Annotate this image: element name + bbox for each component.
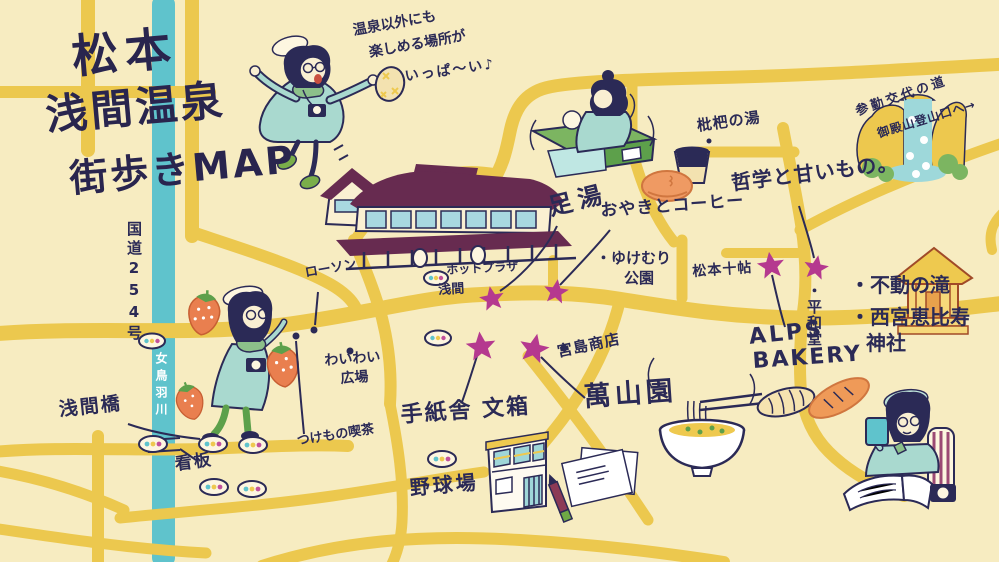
strawberry-icon: [172, 379, 207, 423]
signboard-icon: [238, 481, 266, 497]
camera-icon: [246, 358, 266, 372]
label-hot-plaza-line2: 浅間: [438, 283, 465, 297]
label-manzanen: 萬山園: [583, 378, 678, 411]
label-nishinomiya-line1: ・西宮恵比寿: [850, 307, 970, 327]
signboard-icon: [239, 437, 267, 453]
strawberry-icon: [265, 341, 300, 389]
asama-onsen-walking-map: 松本 浅間温泉 街歩きMAP 温泉以外にも 楽しめる場所が いっぱ〜い♪ 足湯 …: [0, 0, 999, 562]
signboard-icon: [199, 436, 227, 452]
signboard-icon: [139, 436, 167, 452]
label-yukemuri-park-line2: 公園: [624, 271, 654, 286]
map-title-line1: 松本: [70, 25, 180, 80]
uchiwa-fan-icon: [372, 64, 407, 104]
label-nishinomiya-line2: 神社: [866, 333, 906, 353]
reading-girl-illustration: [844, 387, 956, 510]
label-hot-plaza-line1: ホットプラザ: [446, 260, 519, 276]
signboard-icon: [428, 451, 456, 467]
label-waiwai-square-line2: 広場: [340, 370, 369, 386]
label-yukemuri-park-line1: ・ゆけむり: [596, 251, 671, 266]
label-route-254: 国道254号: [126, 221, 141, 344]
label-waiwai-square-line1: わいわい: [324, 350, 381, 368]
signboard-icon: [200, 479, 228, 495]
label-matsumoto-jujo: 松本十帖: [692, 261, 753, 279]
hot-plaza-building-illustration: [320, 164, 576, 269]
tegamisha-building-illustration: [486, 432, 548, 512]
label-metoba-river: 女鳥羽川: [155, 352, 167, 420]
label-fudo-falls: ・不動の滝: [850, 275, 950, 295]
signboard-icon: [425, 331, 451, 346]
camera-icon: [930, 484, 956, 502]
label-yakyujo: 野球場: [409, 472, 479, 498]
letter-papers-icon: [562, 448, 638, 507]
star-marker-icon: [465, 330, 498, 361]
